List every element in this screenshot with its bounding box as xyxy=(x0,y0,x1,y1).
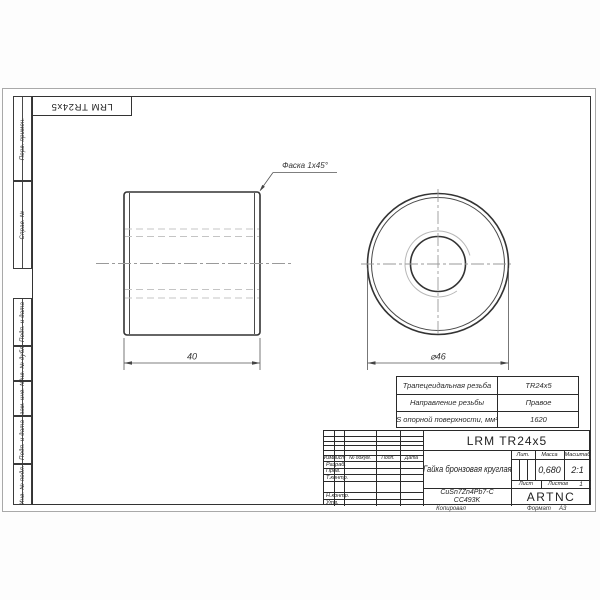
part-name: Гайка бронзовая круглая xyxy=(423,450,511,488)
scale-value: 2:1 xyxy=(564,459,591,480)
front-view xyxy=(361,189,511,336)
sheets-value: 1 xyxy=(573,480,589,488)
dimension-length-text: 40 xyxy=(187,352,197,362)
row-tkontr: Т.контр. xyxy=(324,474,364,481)
arrowhead xyxy=(260,185,265,192)
dimension-diameter-text: ⌀46 xyxy=(430,352,445,362)
col-data: Дата xyxy=(400,455,423,461)
spec-row2-label: Направление резьбы xyxy=(397,394,497,411)
sheets-label: Листов xyxy=(543,480,573,488)
company-name: ARTNC xyxy=(511,488,591,506)
dimension-length: 40 xyxy=(124,338,260,370)
title-block: Изм. Лист № докум. Подп. Дата Разраб. Пр… xyxy=(323,430,590,505)
thread-spec-table: Трапецеидальная резьба TR24x5 Направлени… xyxy=(396,376,579,428)
material-line1: CuSn7Zn4Pb7-C xyxy=(440,489,493,497)
row-razrab: Разраб. xyxy=(324,461,364,468)
format-label: Формат xyxy=(527,506,551,512)
spec-row1-value: TR24x5 xyxy=(498,377,579,394)
drawing-sheet: LRM TR24x5 Перв. примен. Справ. № Подп. … xyxy=(2,88,596,512)
row-utv: Утв. xyxy=(324,499,364,506)
spec-row3-value: 1620 xyxy=(498,411,579,428)
mass-value: 0,680 xyxy=(535,459,564,480)
material: CuSn7Zn4Pb7-C CC493K xyxy=(423,488,511,506)
mass-label: Масса xyxy=(535,450,564,459)
drawing-screen: LRM TR24x5 Перв. примен. Справ. № Подп. … xyxy=(0,0,600,600)
arrowhead xyxy=(501,361,509,365)
material-line2: CC493K xyxy=(454,497,480,505)
arrowhead xyxy=(368,361,376,365)
col-podp: Подп. xyxy=(376,455,400,461)
spec-row1-label: Трапецеидальная резьба xyxy=(397,377,497,394)
spec-row3-label: S опорной поверхности, мм² xyxy=(397,411,497,428)
row-nkontr: Н.контр. xyxy=(324,492,364,499)
designation: LRM TR24x5 xyxy=(423,431,591,450)
sheet-label: Лист xyxy=(511,480,541,488)
chamfer-note-text: Фаска 1x45° xyxy=(282,161,329,170)
format-value: А3 xyxy=(559,506,566,512)
chamfer-note: Фаска 1x45° xyxy=(260,161,338,192)
side-view xyxy=(96,192,291,335)
scale-label: Масштаб xyxy=(564,450,591,459)
arrowhead xyxy=(124,361,132,365)
arrowhead xyxy=(252,361,260,365)
lit-label: Лит. xyxy=(511,450,535,459)
copied-label: Копировал xyxy=(411,506,491,512)
spec-row2-value: Правое xyxy=(498,394,579,411)
